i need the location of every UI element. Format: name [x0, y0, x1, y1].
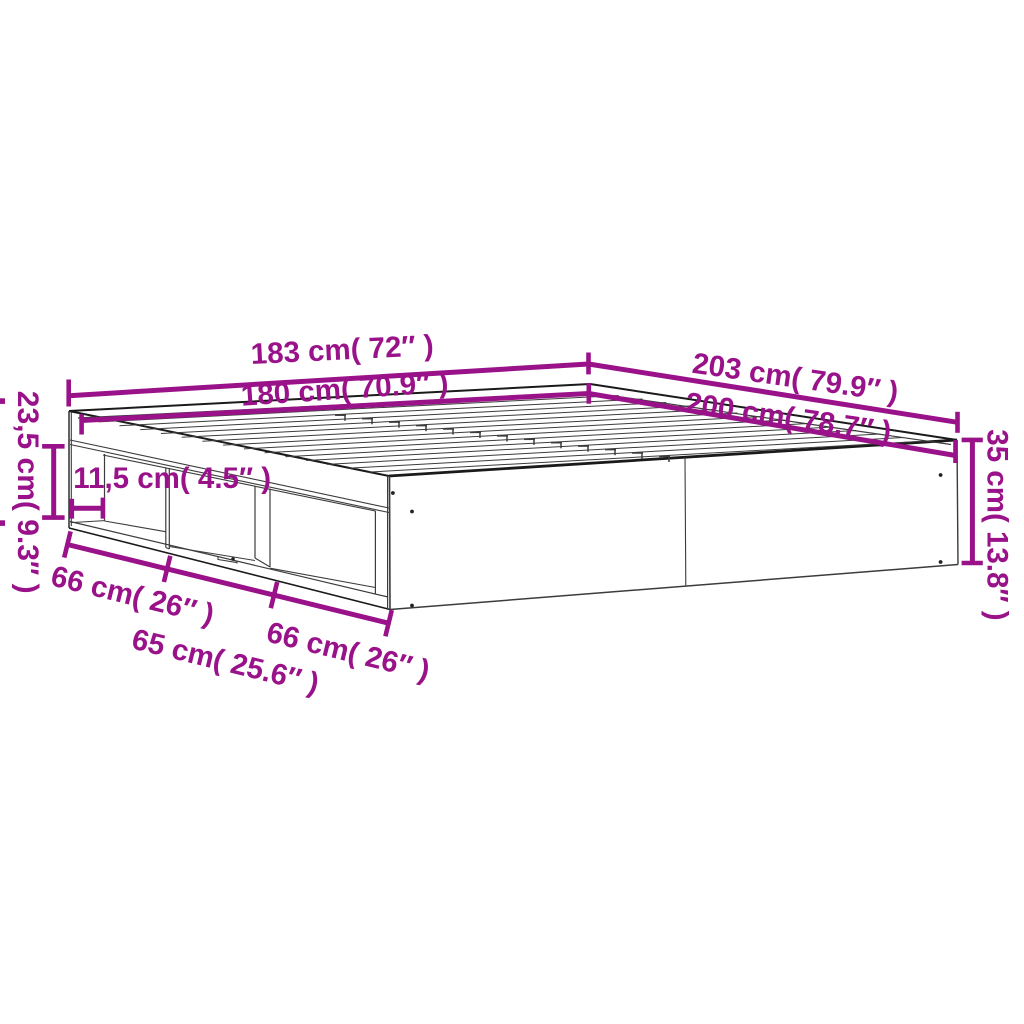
svg-text:183 cm( 72″ ): 183 cm( 72″ )	[250, 329, 434, 371]
svg-text:66 cm( 26″ ): 66 cm( 26″ )	[48, 560, 218, 632]
svg-text:23,5 cm( 9.3″ ): 23,5 cm( 9.3″ )	[11, 391, 44, 594]
svg-text:11,5 cm( 4.5″ ): 11,5 cm( 4.5″ )	[73, 462, 271, 495]
svg-text:35 cm( 13.8″ ): 35 cm( 13.8″ )	[981, 429, 1014, 620]
